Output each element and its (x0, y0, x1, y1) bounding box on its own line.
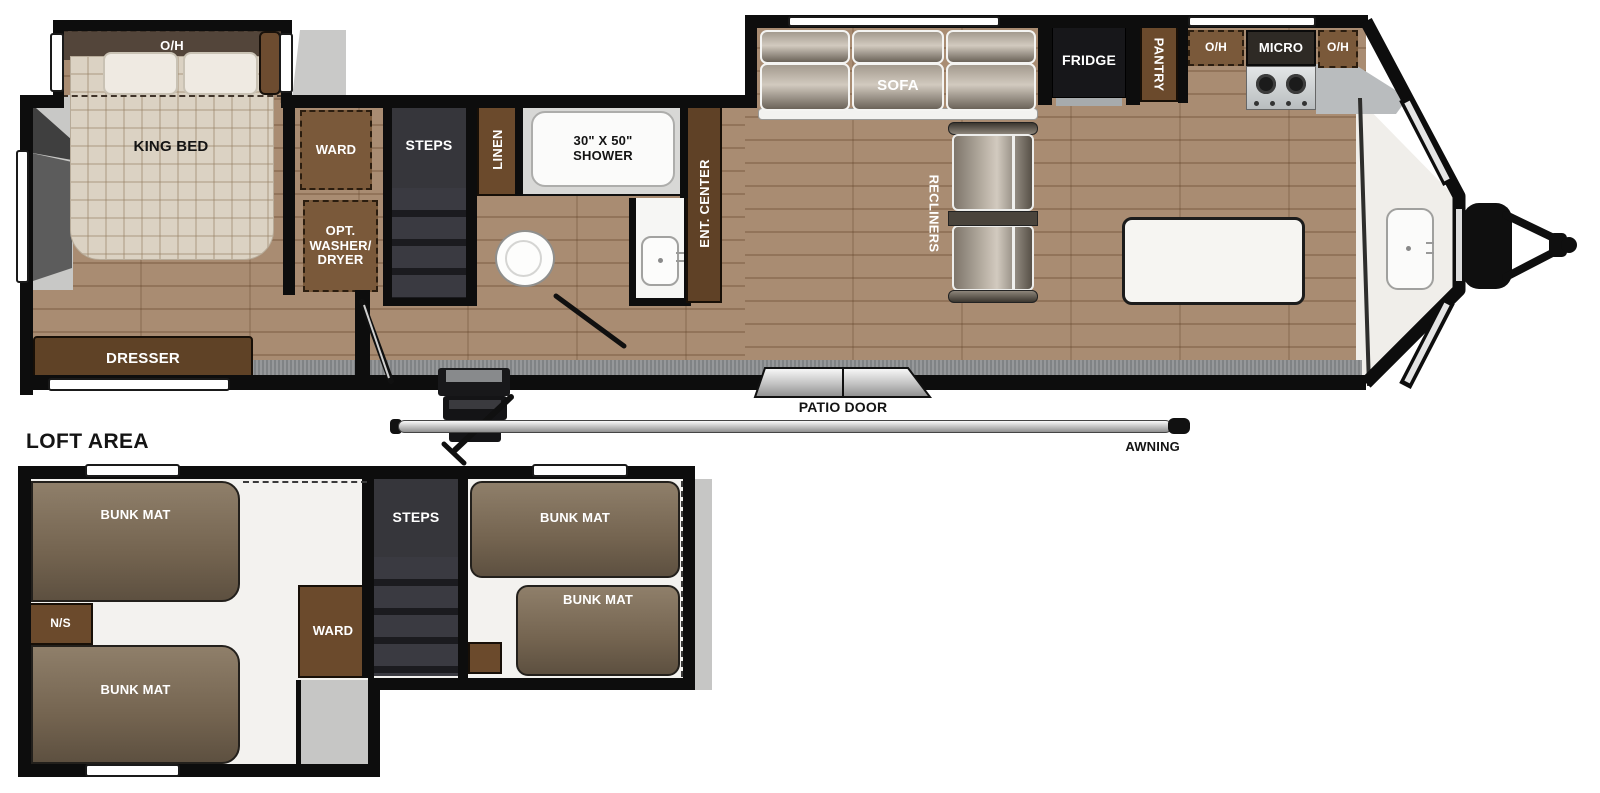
bedroom-door-highlight (364, 305, 389, 378)
loft-wardrobe-label: WARD (298, 585, 368, 678)
shower-size-text: 30" X 50" (574, 134, 633, 149)
loft-nightstand-label: N/S (28, 603, 93, 645)
ent-center-label: ENT. CENTER (686, 103, 722, 303)
pantry-label: PANTRY (1140, 28, 1178, 100)
recliners-label-text: RECLINERS (927, 174, 942, 252)
loft-bunk-mat-2 (31, 645, 240, 764)
loft-bunk-mat-4-label: BUNK MAT (516, 590, 680, 610)
sofa-label: SOFA (852, 78, 944, 94)
main-steps-label: STEPS (392, 103, 466, 188)
loft-body-shade-right (695, 479, 712, 690)
awning-bar (398, 420, 1172, 433)
loft-bunk-mat-3 (470, 481, 680, 578)
washer-dryer-line3: DRYER (317, 253, 363, 268)
front-nose-walls (1366, 21, 1459, 383)
overhead-left-label: O/H (1188, 40, 1244, 56)
loft-open-edge-dash-h (243, 481, 367, 483)
loft-body-shade-notch (301, 680, 368, 764)
loft-bunk-mat-3-label: BUNK MAT (470, 508, 680, 528)
linen-label-text: LINEN (490, 129, 505, 170)
shower-text: SHOWER (573, 149, 633, 164)
loft-window-top (85, 464, 180, 477)
washer-dryer-line2: WASHER/ (309, 239, 371, 254)
loft-wall-connector (368, 678, 380, 777)
dresser-label: DRESSER (33, 336, 253, 383)
loft-bunk-mat-1 (31, 481, 240, 602)
loft-notch-edge (296, 680, 301, 764)
shower-label: 30" X 50" SHOWER (531, 111, 675, 187)
loft-small-cabinet (468, 642, 502, 674)
micro-label: MICRO (1246, 40, 1316, 56)
loft-bunk-mat-2-label: BUNK MAT (31, 680, 240, 700)
loft-wall-bottom-right (368, 678, 695, 690)
washer-dryer-label: OPT. WASHER/ DRYER (303, 200, 378, 292)
nose-counter-edge (1360, 98, 1369, 386)
fridge-label: FRIDGE (1052, 52, 1126, 70)
wardrobe-label: WARD (300, 110, 372, 190)
linen-label: LINEN (477, 103, 517, 196)
king-bed-label: KING BED (101, 138, 241, 156)
loft-wall-bottom-left (18, 764, 380, 777)
loft-area-heading: LOFT AREA (26, 430, 186, 454)
loft-steps-treads (374, 557, 458, 676)
nose-window-upper (1407, 102, 1447, 180)
loft-wall-right (683, 466, 695, 690)
loft-bunk-mat-1-label: BUNK MAT (31, 505, 240, 525)
awning-cap-right (1168, 418, 1190, 434)
bath-door-swing (556, 296, 624, 346)
bed-overhead-label: O/H (130, 38, 214, 54)
loft-window-bottom (85, 764, 180, 777)
loft-steps-wall-right (458, 479, 468, 678)
loft-window-right-arm (532, 464, 628, 477)
washer-dryer-line1: OPT. (326, 224, 356, 239)
recliners-label: RECLINERS (922, 148, 946, 278)
rv-floorplan: O/H KING BED WARD OPT. WASHER/ DRYER DRE… (0, 0, 1600, 793)
pantry-label-text: PANTRY (1152, 37, 1167, 91)
ent-center-label-text: ENT. CENTER (697, 159, 712, 248)
patio-door-label: PATIO DOOR (783, 400, 903, 416)
loft-open-edge-dash-v (681, 481, 683, 677)
loft-steps-label: STEPS (374, 479, 458, 557)
awning-label: AWNING (1085, 440, 1180, 455)
hitch-ball (1561, 237, 1577, 253)
overhead-right-label: O/H (1318, 40, 1358, 56)
